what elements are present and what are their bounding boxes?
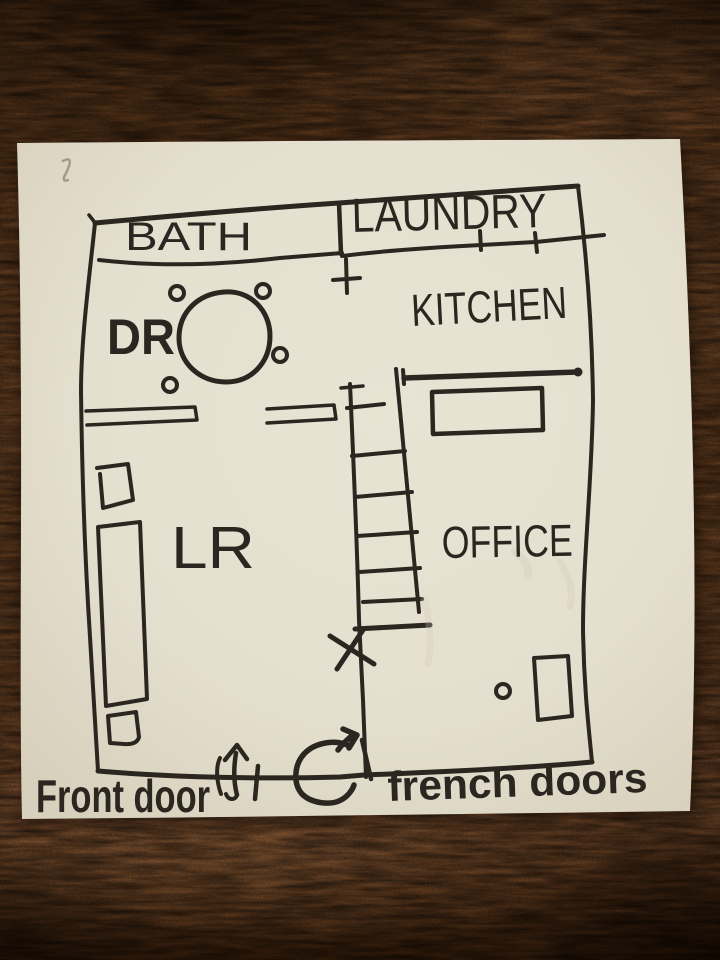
svg-text:LAUNDRY: LAUNDRY bbox=[351, 185, 547, 243]
svg-text:KITCHEN: KITCHEN bbox=[410, 277, 568, 336]
svg-text:LR: LR bbox=[171, 515, 255, 581]
svg-text:OFFICE: OFFICE bbox=[441, 515, 573, 568]
svg-text:BATH: BATH bbox=[125, 215, 252, 259]
svg-text:DR: DR bbox=[107, 309, 175, 365]
svg-text:Front door: Front door bbox=[36, 770, 210, 822]
svg-text:french doors: french doors bbox=[387, 754, 648, 810]
